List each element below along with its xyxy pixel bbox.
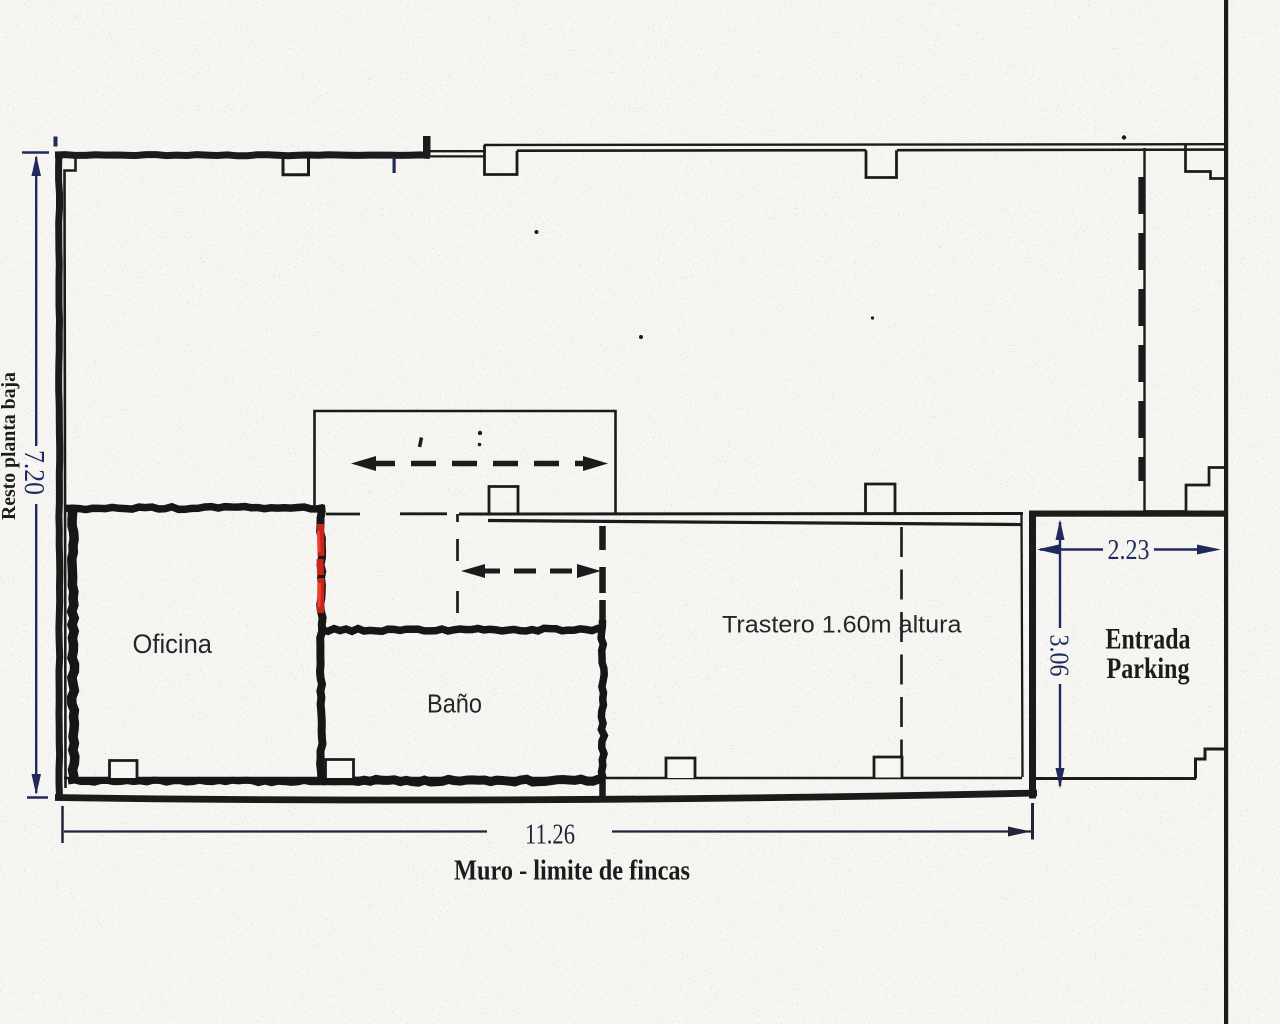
svg-text:Trastero 1.60m altura: Trastero 1.60m altura [722,612,962,639]
svg-text:3.06: 3.06 [1045,635,1075,677]
svg-text:7.20: 7.20 [18,450,49,495]
svg-text:Parking: Parking [1107,652,1190,685]
svg-text:2.23: 2.23 [1108,535,1150,566]
svg-text:Entrada: Entrada [1106,623,1191,656]
svg-text:Baño: Baño [427,691,482,719]
svg-text:Resto planta baja: Resto planta baja [0,372,20,520]
svg-text:Oficina: Oficina [133,629,213,659]
svg-text:Muro - limite de fincas: Muro - limite de fincas [454,855,690,887]
svg-text:11.26: 11.26 [525,819,575,851]
